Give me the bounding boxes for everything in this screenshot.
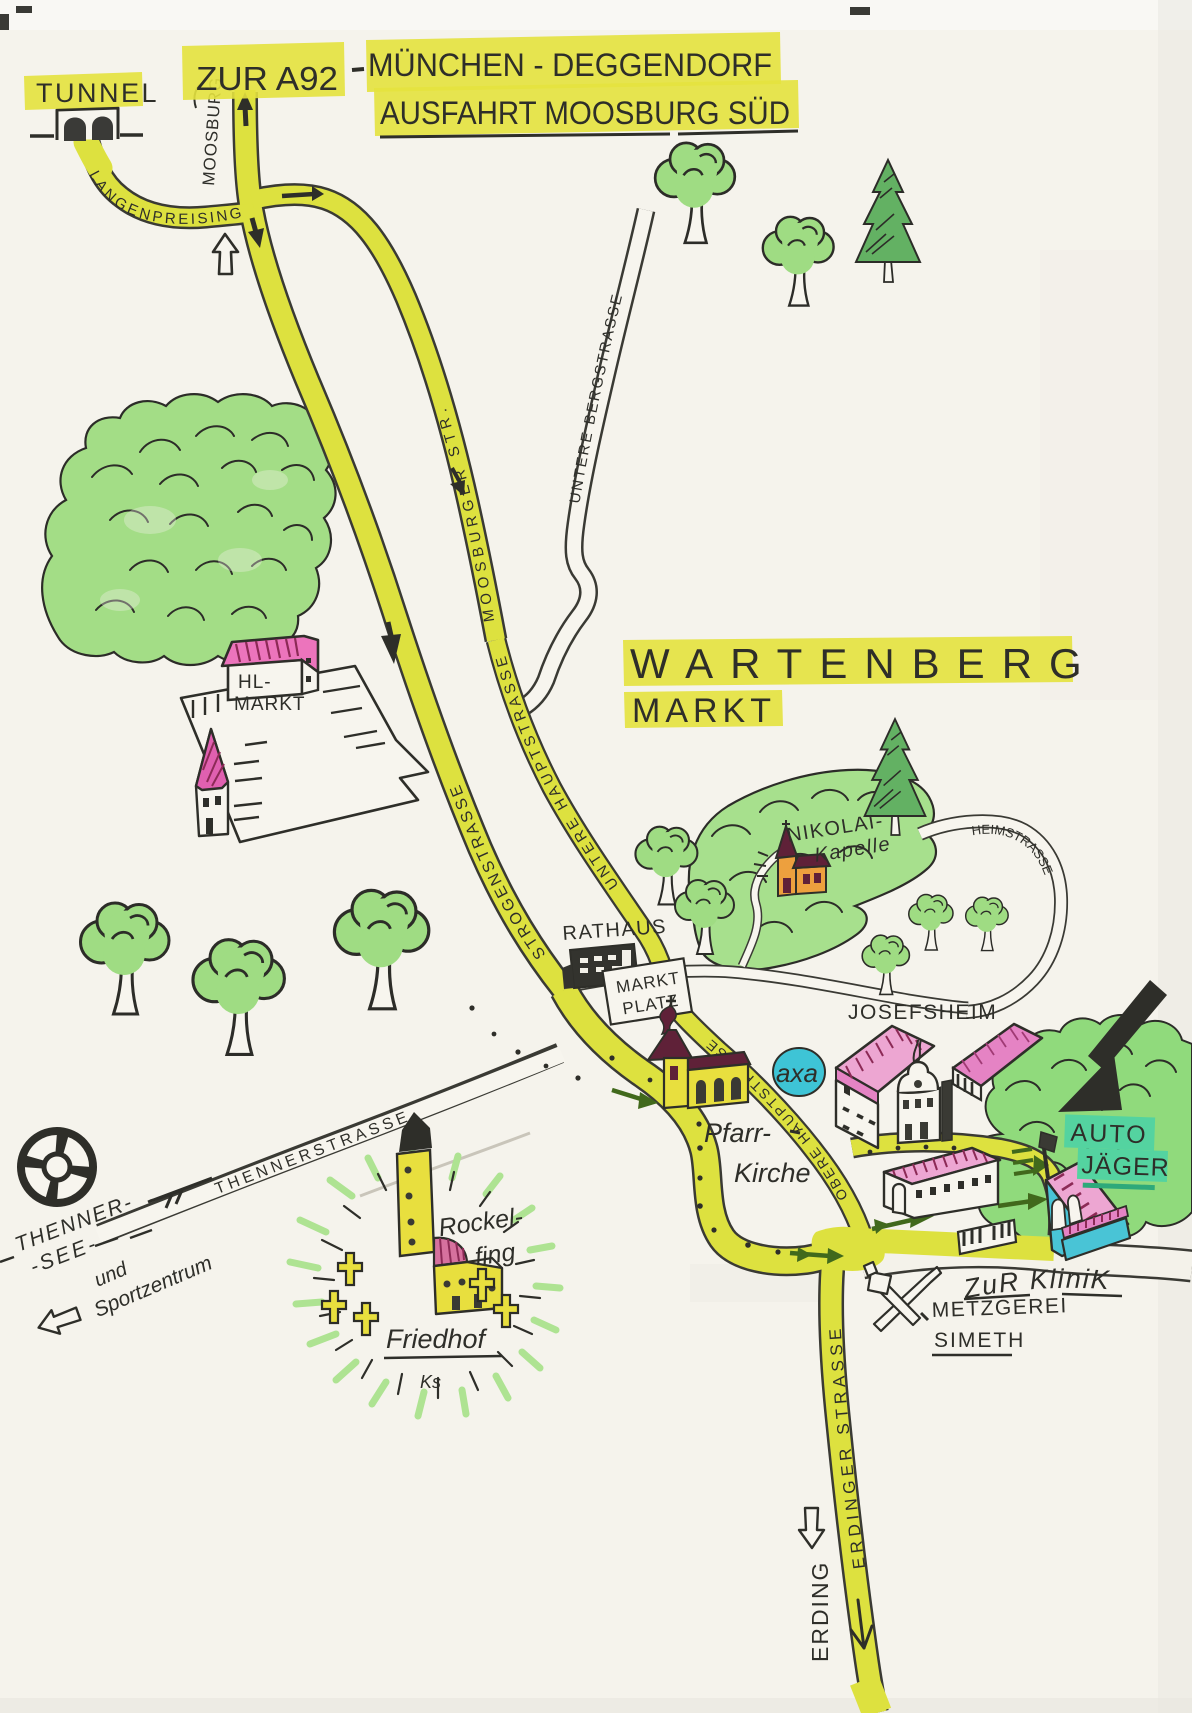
svg-text:MARKT: MARKT — [632, 692, 776, 730]
svg-text:TUNNEL: TUNNEL — [36, 78, 159, 108]
svg-text:HL-: HL- — [238, 672, 272, 693]
svg-text:JOSEFSHEIM: JOSEFSHEIM — [848, 1001, 997, 1024]
svg-text:Pfarr-: Pfarr- — [704, 1118, 771, 1148]
svg-text:MÜNCHEN - DEGGENDORF: MÜNCHEN - DEGGENDORF — [368, 47, 772, 83]
svg-text:Ks: Ks — [420, 1372, 441, 1392]
svg-text:fing: fing — [473, 1238, 517, 1271]
svg-text:AUTO: AUTO — [1070, 1119, 1148, 1150]
svg-text:axa: axa — [776, 1058, 818, 1088]
svg-text:MARKT: MARKT — [234, 694, 306, 715]
svg-text:Friedhof: Friedhof — [386, 1324, 488, 1354]
svg-text:WARTENBERG: WARTENBERG — [630, 640, 1099, 687]
svg-text:JÄGER: JÄGER — [1081, 1151, 1170, 1182]
svg-text:ZUR A92: ZUR A92 — [196, 60, 338, 97]
svg-text:SIMETH: SIMETH — [934, 1329, 1025, 1352]
svg-text:ERDING: ERDING — [807, 1561, 833, 1662]
svg-text:Kirche: Kirche — [734, 1158, 811, 1188]
svg-text:AUSFAHRT MOOSBURG SÜD: AUSFAHRT MOOSBURG SÜD — [380, 95, 790, 131]
svg-text:METZGEREI: METZGEREI — [931, 1294, 1068, 1322]
